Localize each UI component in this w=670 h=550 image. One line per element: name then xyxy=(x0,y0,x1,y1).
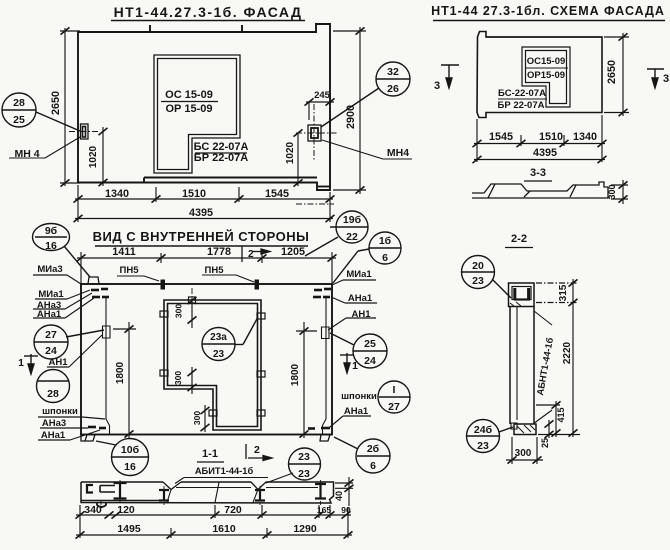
svg-text:ПН5: ПН5 xyxy=(205,265,225,276)
svg-text:26: 26 xyxy=(387,83,399,95)
svg-text:БС-22-07А: БС-22-07А xyxy=(498,88,546,99)
svg-text:300: 300 xyxy=(174,304,184,318)
svg-text:2900: 2900 xyxy=(345,105,357,129)
svg-text:1290: 1290 xyxy=(293,523,317,535)
svg-text:300: 300 xyxy=(607,184,617,199)
svg-text:20: 20 xyxy=(472,260,484,272)
svg-text:шпонки: шпонки xyxy=(42,406,78,417)
svg-text:1545: 1545 xyxy=(489,131,513,143)
svg-text:1610: 1610 xyxy=(212,523,236,535)
svg-text:МИа3: МИа3 xyxy=(37,264,62,275)
svg-text:3: 3 xyxy=(434,80,440,92)
svg-text:25: 25 xyxy=(540,438,550,448)
svg-text:2б: 2б xyxy=(367,443,380,455)
svg-text:1205: 1205 xyxy=(281,246,305,258)
svg-text:2650: 2650 xyxy=(50,91,62,115)
svg-text:245: 245 xyxy=(314,90,331,101)
svg-text:28: 28 xyxy=(13,97,25,109)
svg-text:1340: 1340 xyxy=(105,188,129,200)
svg-text:БР 22-07А: БР 22-07А xyxy=(498,100,545,111)
svg-text:3-3: 3-3 xyxy=(530,167,546,179)
svg-text:27: 27 xyxy=(45,329,57,341)
svg-text:720: 720 xyxy=(224,504,242,516)
svg-text:НТ1-44 27.3-1бл. СХЕМА ФАСАДА: НТ1-44 27.3-1бл. СХЕМА ФАСАДА xyxy=(431,4,665,18)
svg-text:МИа1: МИа1 xyxy=(346,269,372,280)
svg-text:АНа1: АНа1 xyxy=(348,293,373,304)
svg-text:1510: 1510 xyxy=(182,188,206,200)
svg-text:25: 25 xyxy=(364,338,376,350)
svg-text:10б: 10б xyxy=(121,444,140,456)
svg-text:24: 24 xyxy=(45,345,57,357)
svg-text:16: 16 xyxy=(124,461,136,473)
svg-text:90: 90 xyxy=(341,505,351,515)
svg-text:300: 300 xyxy=(192,411,202,425)
svg-text:40: 40 xyxy=(334,491,344,501)
svg-text:АНа1: АНа1 xyxy=(41,430,66,441)
svg-text:НТ1-44.27.3-1б. ФАСАД: НТ1-44.27.3-1б. ФАСАД xyxy=(114,4,303,20)
svg-text:1411: 1411 xyxy=(112,246,135,258)
svg-text:2650: 2650 xyxy=(606,60,618,84)
svg-text:19б: 19б xyxy=(343,214,362,226)
svg-text:ОС15-09: ОС15-09 xyxy=(527,56,566,67)
svg-text:ПН5: ПН5 xyxy=(120,265,140,276)
svg-text:23: 23 xyxy=(213,349,225,360)
svg-text:1-1: 1-1 xyxy=(202,448,218,460)
svg-text:32: 32 xyxy=(387,66,399,78)
svg-text:1800: 1800 xyxy=(290,363,301,386)
svg-text:1800: 1800 xyxy=(115,361,126,384)
svg-text:6: 6 xyxy=(370,460,376,472)
svg-text:300: 300 xyxy=(173,371,183,385)
svg-text:1495: 1495 xyxy=(117,523,141,535)
svg-text:120: 120 xyxy=(117,504,135,516)
svg-text:3: 3 xyxy=(663,73,669,85)
svg-text:1: 1 xyxy=(18,357,24,369)
svg-text:МН4: МН4 xyxy=(387,147,409,159)
svg-text:БР 22-07А: БР 22-07А xyxy=(194,152,248,164)
svg-text:1510: 1510 xyxy=(539,131,563,143)
svg-text:МИа1: МИа1 xyxy=(38,289,64,300)
svg-text:315: 315 xyxy=(558,284,569,301)
svg-text:23а: 23а xyxy=(210,332,227,343)
svg-text:340: 340 xyxy=(84,504,102,516)
svg-text:28: 28 xyxy=(47,388,59,400)
svg-text:1778: 1778 xyxy=(207,246,231,258)
svg-text:1б: 1б xyxy=(379,235,392,247)
svg-text:23: 23 xyxy=(298,451,310,463)
svg-text:ОР15-09: ОР15-09 xyxy=(527,70,565,81)
svg-text:АНа3: АНа3 xyxy=(42,418,66,429)
svg-text:27: 27 xyxy=(388,401,400,413)
svg-text:ОР 15-09: ОР 15-09 xyxy=(165,103,212,115)
svg-text:1: 1 xyxy=(352,360,358,372)
svg-text:415: 415 xyxy=(556,407,566,422)
svg-text:1545: 1545 xyxy=(265,188,289,200)
svg-text:МН 4: МН 4 xyxy=(14,148,39,160)
svg-text:6: 6 xyxy=(382,252,388,264)
svg-text:165: 165 xyxy=(317,505,331,515)
svg-text:22: 22 xyxy=(346,231,358,243)
svg-text:ВИД С ВНУТРЕННЕЙ СТОРОНЫ: ВИД С ВНУТРЕННЕЙ СТОРОНЫ xyxy=(93,229,310,244)
svg-text:2220: 2220 xyxy=(562,341,573,364)
svg-text:АНа1: АНа1 xyxy=(344,406,369,417)
svg-text:23: 23 xyxy=(298,468,310,480)
svg-text:24б: 24б xyxy=(474,424,493,436)
svg-text:1020: 1020 xyxy=(285,141,296,164)
svg-text:шпонки: шпонки xyxy=(341,391,377,402)
svg-text:1340: 1340 xyxy=(573,131,597,143)
svg-text:2: 2 xyxy=(248,249,254,260)
svg-text:АБНТ1-44-1б: АБНТ1-44-1б xyxy=(535,337,555,397)
svg-text:2-2: 2-2 xyxy=(511,233,527,245)
svg-text:23: 23 xyxy=(472,275,484,287)
svg-text:АБИТ1-44-1б: АБИТ1-44-1б xyxy=(195,466,254,476)
svg-text:I: I xyxy=(393,384,396,396)
svg-text:23: 23 xyxy=(477,440,489,452)
svg-text:1020: 1020 xyxy=(88,145,99,168)
svg-text:9б: 9б xyxy=(45,225,58,237)
svg-text:24: 24 xyxy=(364,355,376,367)
svg-text:16: 16 xyxy=(45,240,57,252)
svg-text:2: 2 xyxy=(254,444,260,456)
svg-text:4395: 4395 xyxy=(189,207,213,219)
svg-text:25: 25 xyxy=(13,114,25,126)
svg-text:4395: 4395 xyxy=(533,147,557,159)
svg-text:ОС 15-09: ОС 15-09 xyxy=(165,89,213,101)
svg-text:300: 300 xyxy=(515,448,532,459)
